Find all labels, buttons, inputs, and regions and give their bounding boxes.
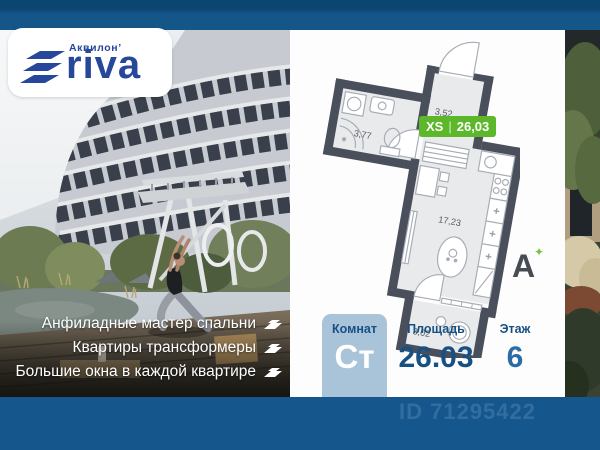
brand-logo-card: Аквилон’ riva xyxy=(8,28,172,97)
feature-item: Большие окна в каждой квартире xyxy=(0,360,282,384)
wave-bullet-icon xyxy=(264,367,282,378)
floor-value: 6 xyxy=(483,343,547,373)
stove xyxy=(490,174,511,202)
area-summary: Площадь 26.03 xyxy=(392,314,480,373)
entrance-door xyxy=(439,37,479,77)
feature-text: Анфиладные мастер спальни xyxy=(42,315,256,333)
badge-separator: | xyxy=(448,119,451,134)
wave-bullet-icon xyxy=(264,319,282,330)
area-value: 26.03 xyxy=(392,343,480,373)
listing-promo-image: Аквилон’ riva Анфиладные мастер спальни … xyxy=(0,0,600,450)
chair xyxy=(437,186,447,196)
brand-product-name: riva xyxy=(66,45,141,85)
total-area-value: 26,03 xyxy=(457,119,490,134)
feature-text: Квартиры трансформеры xyxy=(73,339,257,357)
feature-item: Анфиладные мастер спальни xyxy=(0,312,282,336)
feature-text: Большие окна в каждой квартире xyxy=(16,363,257,381)
desk xyxy=(416,165,440,197)
energy-letter: А xyxy=(512,248,535,284)
garden-strip-illustration xyxy=(565,30,600,397)
energy-class-badge: А ✦ xyxy=(512,250,535,282)
feature-item: Квартиры трансформеры xyxy=(0,336,282,360)
rooms-summary-box: Комнат Ст xyxy=(322,314,387,397)
chair xyxy=(439,172,449,182)
rooms-value: Ст xyxy=(322,340,387,373)
area-badge: XS | 26,03 xyxy=(419,116,496,137)
floor-label: Этаж xyxy=(483,322,547,336)
sparkle-plus-icon: ✦ xyxy=(534,246,544,258)
garden-photo-strip xyxy=(565,30,600,397)
aquilon-wave-icon xyxy=(20,49,66,87)
floor-plan: 3,77 3,52 17,23 3,02 xyxy=(316,26,520,358)
size-label: XS xyxy=(426,119,443,134)
feature-list: Анфиладные мастер спальни Квартиры транс… xyxy=(0,312,282,384)
rooms-label: Комнат xyxy=(322,322,387,336)
sink xyxy=(369,96,394,115)
floor-summary: Этаж 6 xyxy=(483,314,547,373)
area-label: Площадь xyxy=(392,322,480,336)
listing-id: ID 71295422 xyxy=(330,399,600,425)
wave-bullet-icon xyxy=(264,343,282,354)
washing-machine xyxy=(342,92,367,117)
